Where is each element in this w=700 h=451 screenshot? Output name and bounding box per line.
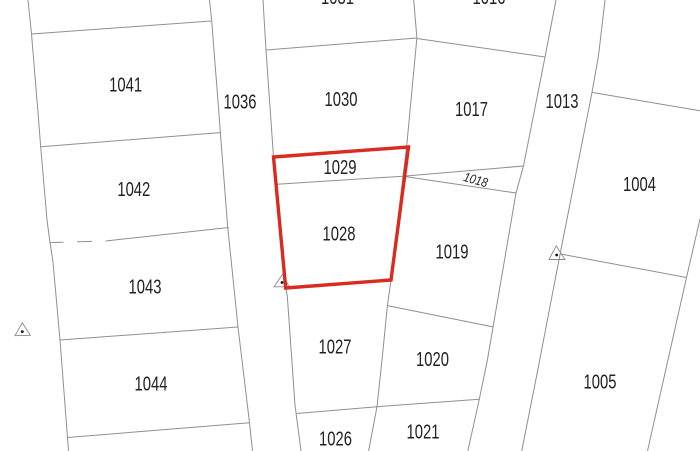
svg-text:1043: 1043 (129, 275, 162, 298)
svg-text:1030: 1030 (325, 88, 358, 111)
svg-text:1044: 1044 (135, 372, 168, 395)
svg-text:1017: 1017 (455, 98, 488, 121)
svg-text:1031: 1031 (321, 0, 354, 8)
svg-text:1013: 1013 (546, 90, 579, 113)
svg-text:1021: 1021 (407, 420, 440, 443)
svg-text:1005: 1005 (584, 370, 617, 393)
svg-text:1016: 1016 (473, 0, 506, 8)
svg-text:1028: 1028 (323, 222, 356, 245)
svg-text:1026: 1026 (319, 427, 352, 450)
svg-text:1041: 1041 (109, 73, 142, 96)
svg-text:1036: 1036 (224, 90, 257, 113)
svg-text:1029: 1029 (324, 156, 357, 179)
svg-text:1042: 1042 (117, 178, 150, 201)
svg-text:1019: 1019 (436, 240, 469, 263)
svg-text:1004: 1004 (623, 173, 656, 196)
svg-text:1027: 1027 (319, 335, 352, 358)
svg-text:1020: 1020 (416, 348, 449, 371)
